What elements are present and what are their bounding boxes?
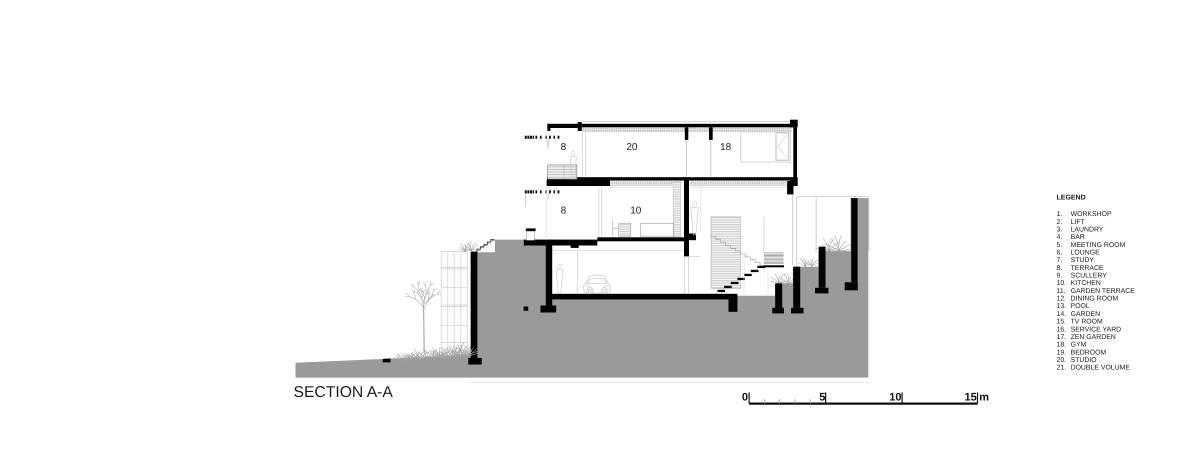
svg-text:10: 10 (889, 391, 901, 403)
svg-text:20: 20 (626, 142, 638, 153)
svg-text:6.: 6. (1057, 250, 1063, 257)
svg-text:LAUNDRY: LAUNDRY (1071, 227, 1104, 234)
svg-text:DOUBLE VOLUME: DOUBLE VOLUME (1071, 365, 1131, 372)
svg-text:12.: 12. (1057, 296, 1067, 303)
svg-text:18.: 18. (1057, 342, 1067, 349)
svg-text:POOL: POOL (1071, 303, 1090, 310)
svg-text:17.: 17. (1057, 334, 1067, 341)
svg-text:2.: 2. (1057, 219, 1063, 226)
svg-text:15: 15 (964, 391, 976, 403)
svg-text:BAR: BAR (1071, 234, 1085, 241)
svg-text:21.: 21. (1057, 365, 1067, 372)
svg-text:16.: 16. (1057, 326, 1067, 333)
svg-text:ZEN GARDEN: ZEN GARDEN (1071, 334, 1116, 341)
svg-text:BEDROOM: BEDROOM (1071, 349, 1107, 356)
svg-text:20.: 20. (1057, 357, 1067, 364)
svg-text:TV ROOM: TV ROOM (1071, 319, 1103, 326)
svg-text:18: 18 (720, 142, 732, 153)
svg-text:13.: 13. (1057, 303, 1067, 310)
svg-text:7.: 7. (1057, 257, 1063, 264)
svg-text:5: 5 (819, 391, 825, 403)
svg-text:14.: 14. (1057, 311, 1067, 318)
svg-text:GYM: GYM (1071, 342, 1087, 349)
svg-text:SCULLERY: SCULLERY (1071, 273, 1108, 280)
svg-text:m: m (979, 391, 989, 403)
svg-text:15.: 15. (1057, 319, 1067, 326)
svg-text:5.: 5. (1057, 242, 1063, 249)
svg-text:11.: 11. (1057, 288, 1066, 295)
svg-text:SECTION A-A: SECTION A-A (294, 384, 394, 401)
svg-text:10: 10 (630, 205, 642, 216)
svg-text:3.: 3. (1057, 227, 1063, 234)
svg-text:TERRACE: TERRACE (1071, 265, 1104, 272)
svg-text:LOUNGE: LOUNGE (1071, 250, 1101, 257)
svg-text:8: 8 (561, 205, 567, 216)
svg-text:STUDY: STUDY (1071, 257, 1095, 264)
svg-text:9.: 9. (1057, 273, 1063, 280)
svg-text:LEGEND: LEGEND (1057, 194, 1086, 201)
svg-text:WORKSHOP: WORKSHOP (1071, 211, 1112, 218)
svg-text:4.: 4. (1057, 234, 1063, 241)
svg-text:KITCHEN: KITCHEN (1071, 280, 1101, 287)
svg-text:LIFT: LIFT (1071, 219, 1086, 226)
svg-text:10.: 10. (1057, 280, 1067, 287)
svg-text:GARDEN TERRACE: GARDEN TERRACE (1071, 288, 1136, 295)
svg-text:MEETING ROOM: MEETING ROOM (1071, 242, 1126, 249)
svg-text:8: 8 (561, 142, 567, 153)
svg-text:0: 0 (742, 391, 748, 403)
svg-text:8.: 8. (1057, 265, 1063, 272)
svg-text:DINING ROOM: DINING ROOM (1071, 296, 1119, 303)
svg-text:19.: 19. (1057, 349, 1067, 356)
svg-text:STUDIO: STUDIO (1071, 357, 1098, 364)
svg-text:SERVICE YARD: SERVICE YARD (1071, 326, 1122, 333)
svg-text:GARDEN: GARDEN (1071, 311, 1101, 318)
svg-text:1.: 1. (1057, 211, 1063, 218)
